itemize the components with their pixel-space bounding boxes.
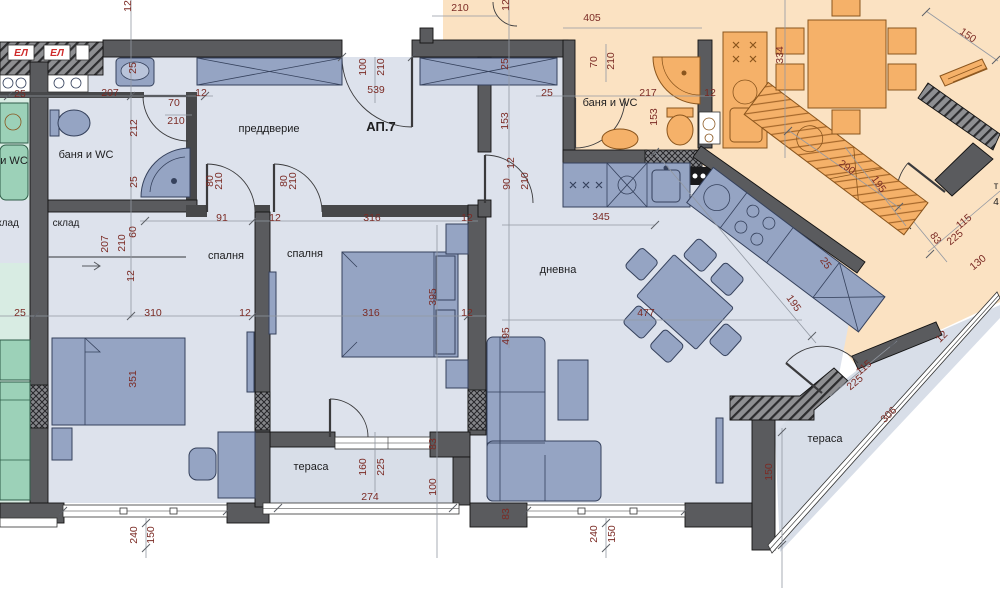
dimension-text: 12: [125, 270, 137, 282]
sofa-horizontal: [487, 441, 601, 501]
toilet-bowl: [58, 110, 90, 136]
dimension-text: 70: [588, 56, 600, 68]
shaft-column-divider: [255, 392, 270, 430]
dimension-text: 12: [195, 87, 207, 99]
room-label: преддверие: [238, 123, 299, 135]
dimension-text: 210: [451, 2, 469, 14]
coffee-table: [558, 360, 588, 420]
dimension-text: 217: [639, 87, 657, 99]
wall-hall-stub: [186, 205, 207, 217]
nightstand: [446, 224, 468, 254]
dimension-text: 12: [269, 212, 281, 224]
chair: [888, 64, 916, 90]
pillow: [436, 310, 455, 354]
dimension-text: 12: [704, 87, 716, 99]
chair: [776, 64, 804, 90]
room-label: клад: [0, 218, 19, 229]
wall-bedroom2-terrace-left: [270, 432, 335, 447]
dimension-text: 83: [500, 508, 512, 520]
dimension-text: 210: [167, 115, 185, 127]
wash-basin: [602, 129, 638, 149]
dimension-text: 334: [774, 46, 786, 64]
dimension-text: 12: [461, 212, 473, 224]
toilet-bowl: [667, 115, 693, 145]
window-mullion: [170, 508, 177, 514]
dimension-text: 210: [519, 172, 531, 190]
wall-terrace1-step-v: [453, 457, 470, 505]
dimension-text: 12: [461, 307, 473, 319]
radiator: [247, 332, 254, 392]
dimension-text: 25: [127, 62, 139, 74]
dimension-text: 207: [99, 235, 111, 253]
faucet: [664, 166, 669, 171]
window-mullion: [630, 508, 637, 514]
room-label: тераса: [294, 461, 330, 473]
dimension-text: 405: [583, 12, 601, 24]
dimension-text: 153: [648, 108, 660, 126]
room-label: и WC: [0, 155, 28, 167]
dimension-text: 150: [763, 463, 775, 481]
dining-table: [808, 20, 886, 108]
room-label: 4: [993, 197, 999, 208]
window-mullion: [578, 508, 585, 514]
wall-window2-right: [685, 503, 752, 527]
dimension-text: 351: [127, 370, 139, 388]
bed-single: [52, 338, 185, 425]
dimension-text: 316: [363, 212, 381, 224]
chair: [832, 0, 860, 16]
dimension-text: 12: [122, 0, 134, 12]
wall-top-b: [412, 40, 568, 57]
dimension-text: 477: [637, 307, 655, 319]
shaft-column-bedroom2: [468, 390, 486, 430]
radiator: [269, 272, 276, 334]
nightstand: [52, 428, 72, 460]
wall-orange-bath-bottom: [563, 150, 647, 163]
dimension-text: 210: [375, 58, 387, 76]
chair: [832, 110, 860, 134]
dimension-text: 160: [357, 458, 369, 476]
dimension-text: 100: [427, 478, 439, 496]
room-label: тераса: [808, 433, 844, 445]
teal-vanity: [0, 103, 28, 143]
shaft-column-left: [30, 385, 48, 428]
niche-fixture: [699, 112, 720, 144]
dimension-text: 310: [144, 307, 162, 319]
wall-orange-bath-left: [563, 40, 575, 163]
dimension-text: 83: [427, 438, 439, 450]
dimension-text: 12: [505, 157, 517, 169]
teal-wardrobe: [0, 340, 30, 380]
desk-chair: [189, 448, 216, 480]
dimension-text: 210: [213, 172, 225, 190]
wall-bath-bottom: [48, 200, 197, 212]
dimension-text: 212: [128, 119, 140, 137]
dimension-text: 91: [216, 212, 228, 224]
el-panel-label: ЕЛ: [14, 48, 29, 59]
desk: [218, 432, 255, 498]
room-label: дневна: [540, 264, 578, 276]
dimension-text: 210: [605, 52, 617, 70]
dimension-text: 225: [375, 458, 387, 476]
wall-terrace1-left: [255, 432, 270, 507]
el-panel-label: ЕЛ: [50, 48, 65, 59]
dimension-text: 70: [168, 97, 180, 109]
dimension-text: 12: [239, 307, 251, 319]
dimension-text: 60: [127, 226, 139, 238]
wall-orange-top-stub: [420, 28, 433, 43]
dimension-text: 395: [427, 288, 439, 306]
dimension-text: 210: [287, 172, 299, 190]
pipe-symbol: [693, 174, 698, 179]
dimension-text: 150: [606, 525, 618, 543]
chair: [888, 28, 916, 54]
dimension-text: 345: [592, 211, 610, 223]
room-label: баня и WC: [583, 97, 638, 109]
shower-drain: [682, 71, 687, 76]
kitchen-sink: [652, 170, 680, 202]
dimension-text: 240: [128, 526, 140, 544]
dimension-text: 90: [501, 178, 513, 190]
room-label: склад: [53, 218, 80, 229]
panel-box: [76, 45, 89, 60]
wall-window2-left: [470, 503, 527, 527]
dimension-text: 316: [362, 307, 380, 319]
radiator: [716, 418, 723, 483]
room-label: баня и WC: [59, 149, 114, 161]
floor-plan-drawing: ЕЛ ЕЛ 1225207257021021225207210601225310…: [0, 0, 1000, 590]
dimension-text: 25: [128, 176, 140, 188]
pipe-symbol: [701, 174, 706, 179]
floor-plan-page: ЕЛ ЕЛ 1225207257021021225207210601225310…: [0, 0, 1000, 590]
room-label: спалня: [208, 250, 244, 262]
window-mullion: [120, 508, 127, 514]
apartment-title: АП.7: [366, 119, 395, 134]
nightstand: [446, 360, 468, 388]
dimension-text: 207: [101, 87, 119, 99]
dimension-text: 100: [357, 58, 369, 76]
teal-bathtub: [0, 145, 28, 200]
dimension-text: 153: [499, 112, 511, 130]
wall-left-party: [30, 62, 48, 505]
dimension-text: 240: [588, 525, 600, 543]
dimension-text: 12: [500, 0, 512, 11]
dimension-text: 539: [367, 84, 385, 96]
dimension-text: 25: [14, 307, 26, 319]
electrical-panels: ЕЛ ЕЛ: [8, 45, 89, 60]
neighbor-window-sill: [0, 518, 57, 527]
dimension-text: 25: [541, 87, 553, 99]
dimension-text: 495: [500, 327, 512, 345]
wall-terrace2-left: [752, 420, 775, 550]
room-label: т: [994, 181, 999, 192]
dimension-text: 25: [14, 88, 26, 100]
dimension-text: 274: [361, 491, 379, 503]
dimension-text: 25: [499, 58, 511, 70]
dimension-text: 150: [145, 526, 157, 544]
wall-hall-right: [322, 205, 468, 217]
shower-drain: [171, 178, 177, 184]
wall-top-a: [103, 40, 342, 57]
room-label: спалня: [287, 248, 323, 260]
